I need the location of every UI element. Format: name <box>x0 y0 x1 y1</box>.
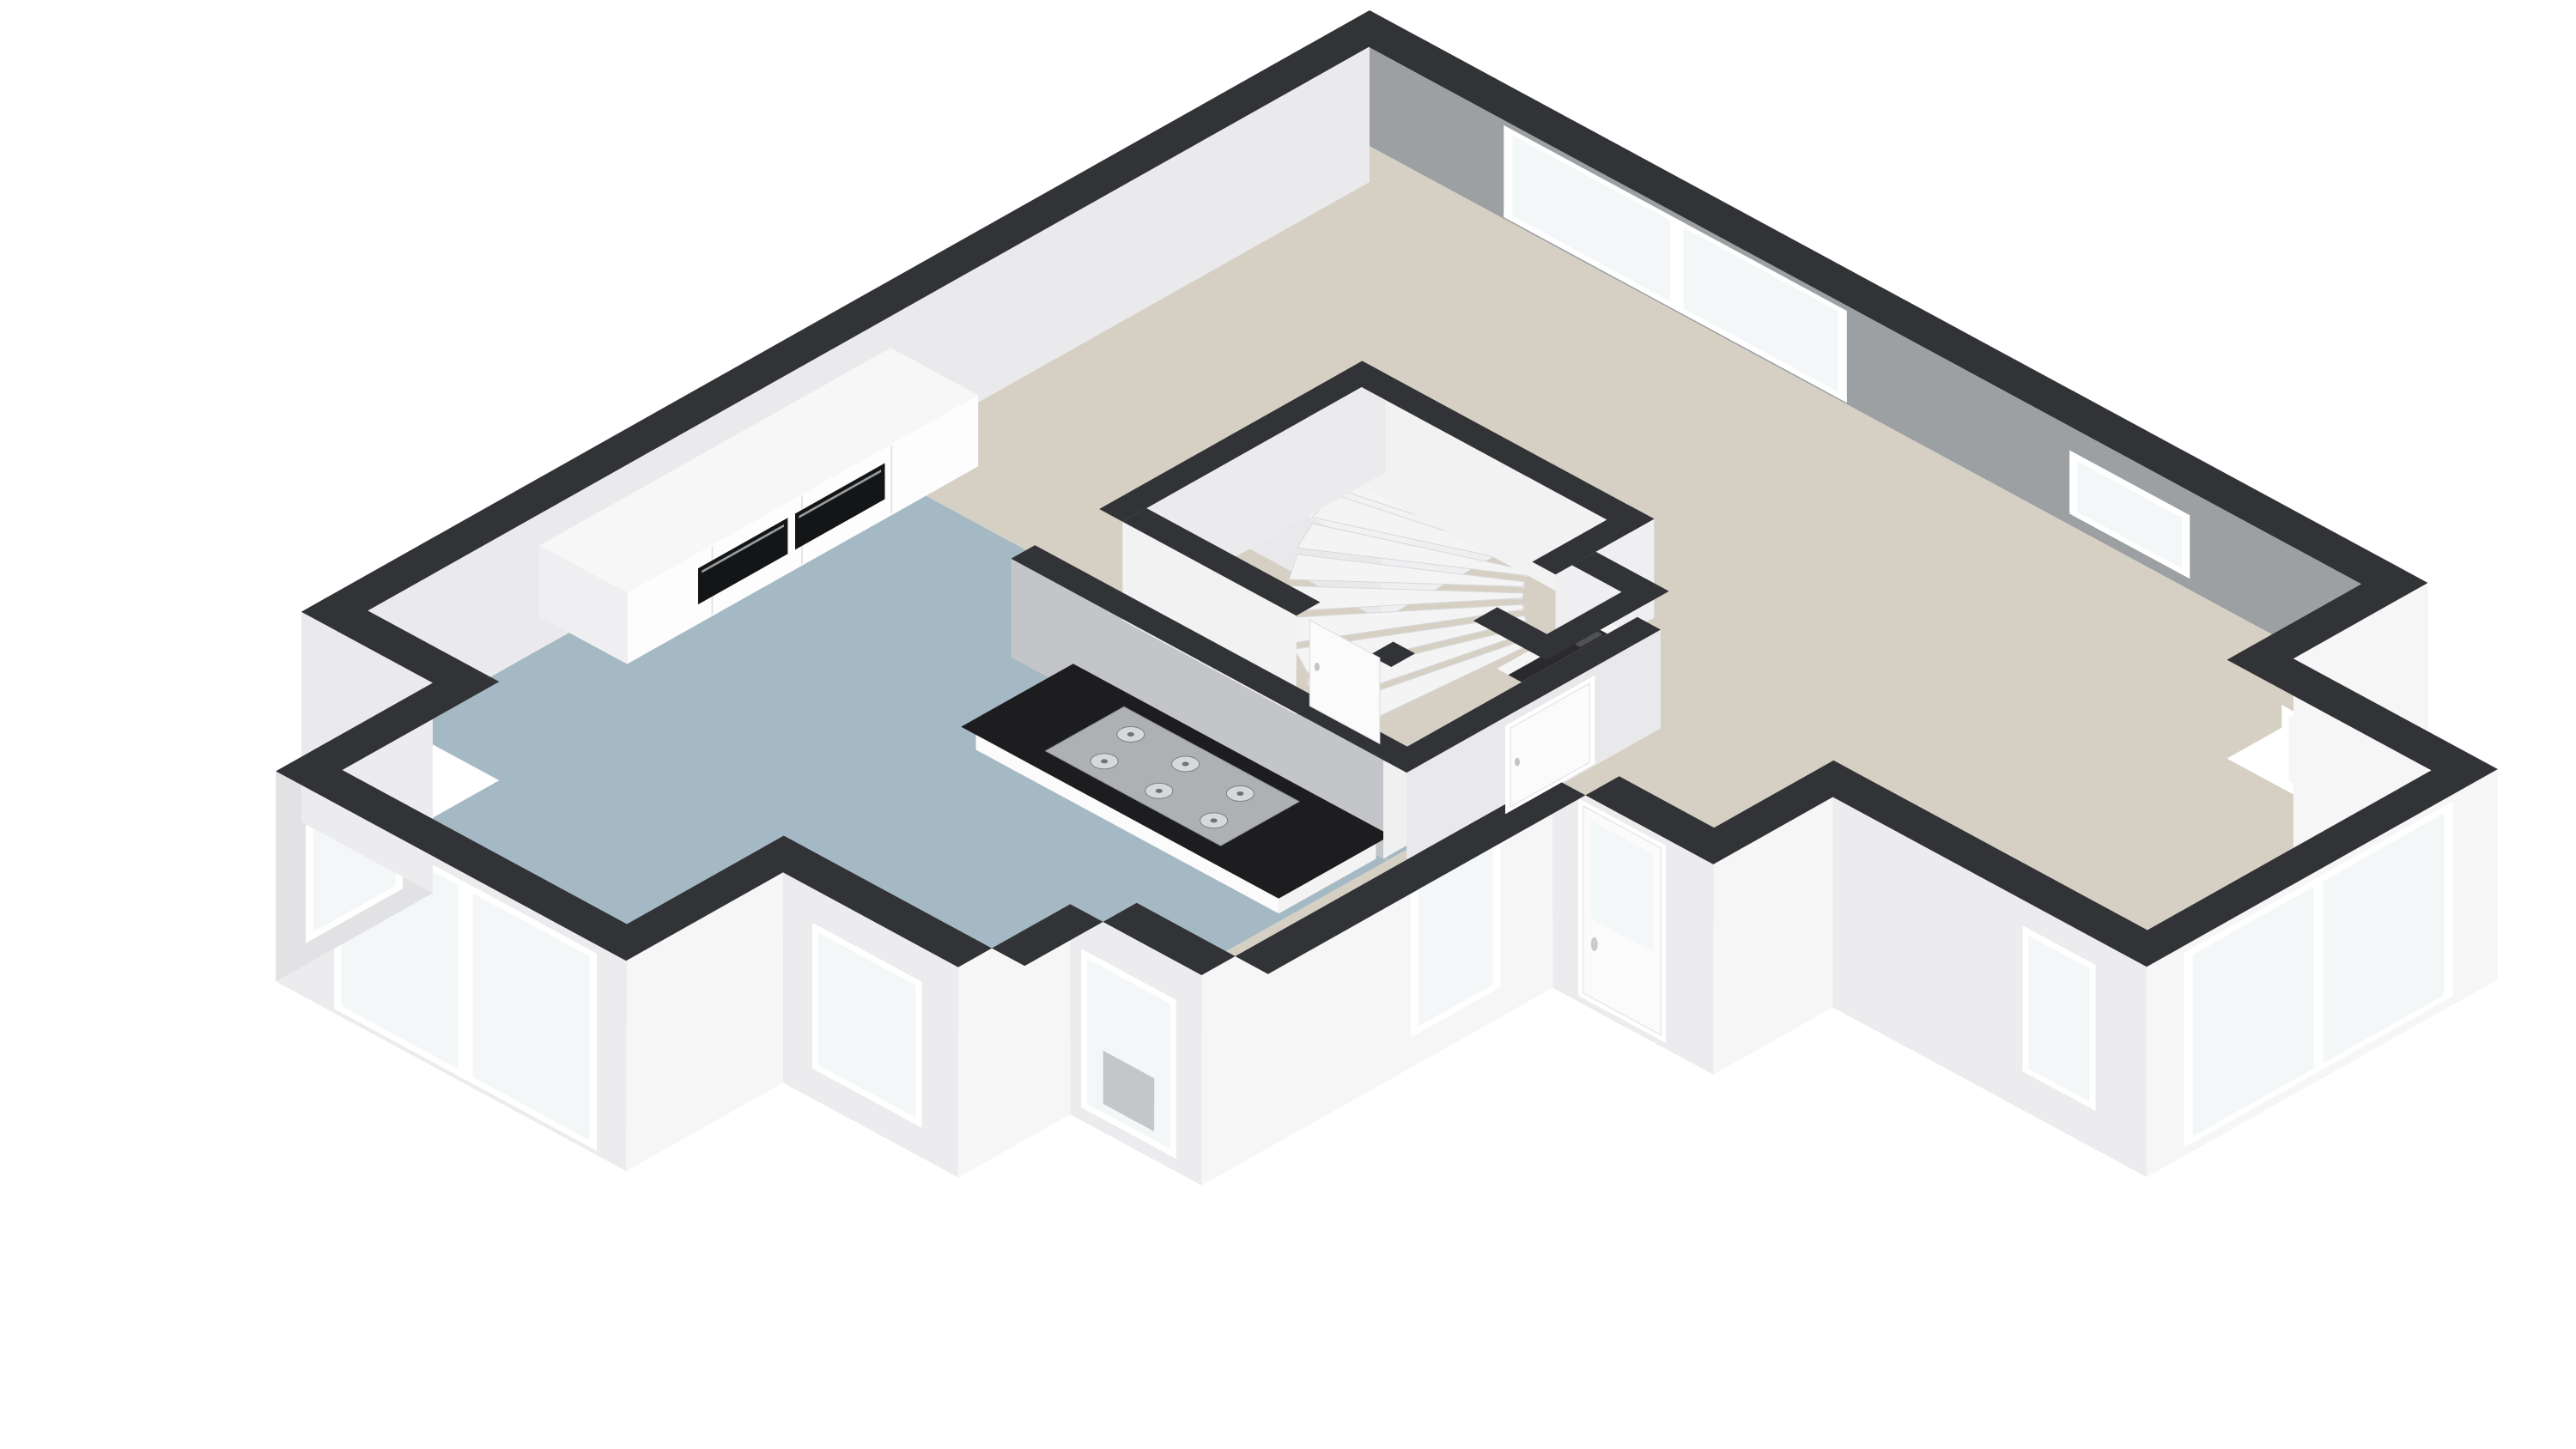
hall-door-handle <box>1515 758 1520 767</box>
burner-cap-6 <box>1211 818 1218 822</box>
burner-cap-2 <box>1182 761 1189 766</box>
burner-cap-1 <box>1127 732 1134 737</box>
sliding-door-mullion <box>1670 221 1683 310</box>
cabinet-seam-1 <box>890 446 892 514</box>
burner-cap-4 <box>1101 759 1108 763</box>
floorplan-stage: 3D dollhouse floor plan — ground floor c… <box>0 0 2576 1449</box>
burner-cap-3 <box>1236 791 1243 796</box>
front-door-handle <box>1591 937 1598 951</box>
stair-door-handle <box>1315 663 1320 671</box>
burner-cap-5 <box>1156 789 1163 793</box>
bay-right-glazing-mullion <box>2314 882 2323 1069</box>
floorplan-canvas[interactable] <box>0 0 2576 1449</box>
